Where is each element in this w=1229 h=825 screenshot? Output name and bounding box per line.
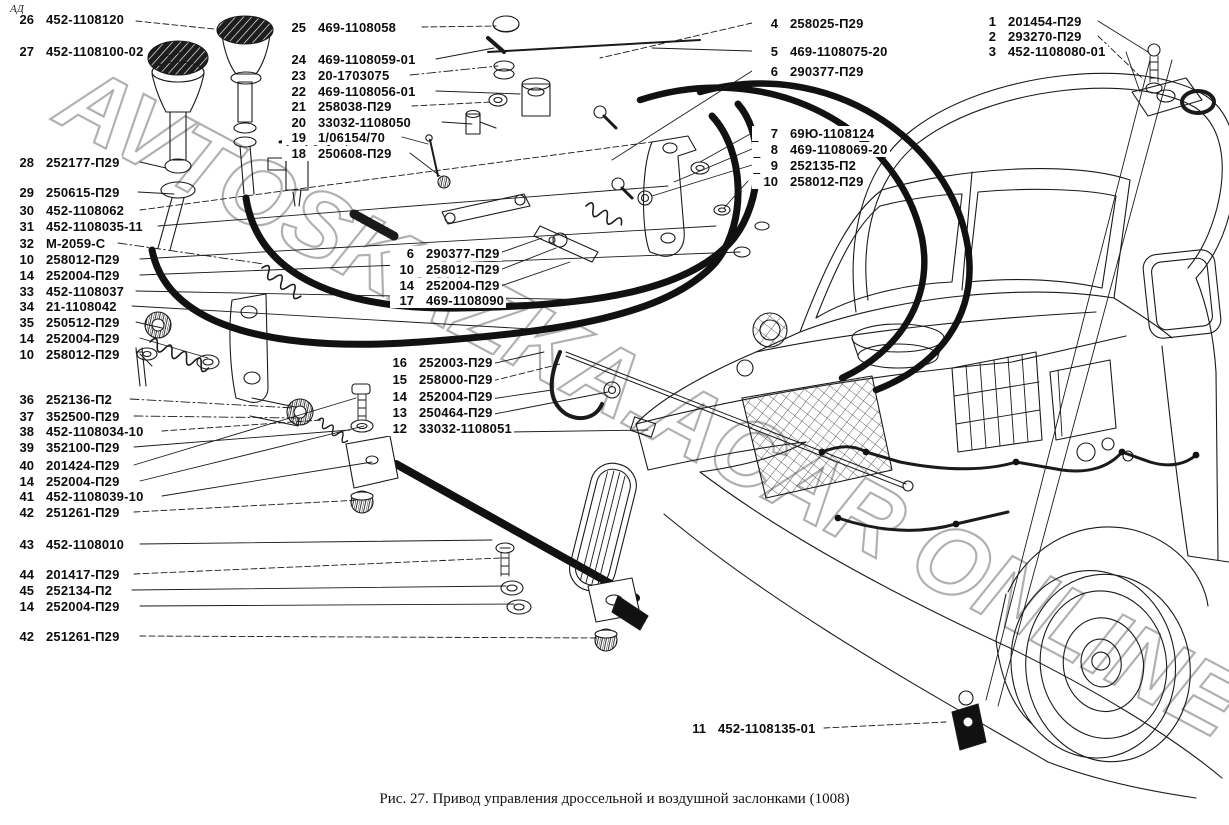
part-ref-number: 4 [754,16,778,31]
part-label-right-column: 6290377-П29 [752,64,866,79]
part-label-right-column: 9252135-П2 [752,158,858,173]
part-code: 258012-П29 [790,174,864,189]
part-code: 252004-П29 [46,268,120,283]
part-ref-number: 37 [10,409,34,424]
part-ref-number: 42 [10,505,34,520]
part-code: 469-1108058 [318,20,396,35]
part-code: 469-1108069-20 [790,142,888,157]
part-ref-number: 36 [10,392,34,407]
part-ref-number: 32 [10,236,34,251]
part-label-left-column: 40201424-П29 [8,458,122,473]
part-ref-number: 45 [10,583,34,598]
part-label-left-column: 14252004-П29 [8,268,122,283]
part-code: 258025-П29 [790,16,864,31]
part-ref-number: 14 [10,474,34,489]
part-code: 452-1108010 [46,537,124,552]
part-label-middle-group-lower: 13250464-П29 [383,405,495,420]
part-ref-number: 6 [392,246,414,261]
part-code: 469-1108059-01 [318,52,416,67]
part-code: 252177-П29 [46,155,120,170]
part-label-right-column: 10258012-П29 [752,174,866,189]
part-code: 258012-П29 [46,347,120,362]
part-code: 20-1703075 [318,68,389,83]
part-label-middle-top-column: 24469-1108059-01 [282,52,418,67]
part-code: М-2059-С [46,236,105,251]
part-label-left-column: 33452-1108037 [8,284,126,299]
part-code: 452-1108034-10 [46,424,144,439]
figure-caption: Рис. 27. Привод управления дроссельной и… [0,791,1229,808]
lower-bracket [952,691,986,750]
part-code: 250512-П29 [46,315,120,330]
part-code: 452-1108037 [46,284,124,299]
part-ref-number: 27 [10,44,34,59]
part-label-middle-top-column: 18250608-П29 [282,146,394,161]
part-ref-number: 1 [980,14,996,29]
part-ref-number: 44 [10,567,34,582]
part-ref-number: 17 [392,293,414,308]
part-ref-number: 6 [754,64,778,79]
part-code: 293270-П29 [1008,29,1082,44]
part-label-far-right-column: 3452-1108080-01 [978,44,1108,59]
part-label-middle-group-lower: 14252004-П29 [383,389,495,404]
part-code: 252004-П29 [46,474,120,489]
part-ref-number: 10 [10,347,34,362]
part-label-middle-group-lower: 1233032-1108051 [383,421,514,436]
part-ref-number: 5 [754,44,778,59]
part-ref-number: 30 [10,203,34,218]
part-code: 452-1108120 [46,12,124,27]
part-label-left-column: 44201417-П29 [8,567,122,582]
part-code: 452-1108135-01 [718,721,816,736]
part-ref-number: 14 [10,599,34,614]
part-code: 258012-П29 [46,252,120,267]
part-code: 258012-П29 [426,262,500,277]
part-label-left-column: 29250615-П29 [8,185,122,200]
watermark-text: AVTOSKAZKA.ACAR ONLINE [40,43,1229,759]
part-ref-number: 8 [754,142,778,157]
part-code: 201417-П29 [46,567,120,582]
part-code: 252136-П2 [46,392,112,407]
part-ref-number: 10 [754,174,778,189]
part-code: 252004-П29 [46,331,120,346]
part-code: 290377-П29 [426,246,500,261]
watermark: AVTOSKAZKA.ACAR ONLINE [40,43,1229,759]
part-code: 1/06154/70 [318,130,385,145]
part-code: 290377-П29 [790,64,864,79]
part-code: 469-1108056-01 [318,84,416,99]
part-ref-number: 2 [980,29,996,44]
part-label-middle-top-column: 2033032-1108050 [282,115,413,130]
part-label-left-column: 35250512-П29 [8,315,122,330]
part-ref-number: 35 [10,315,34,330]
part-label-right-column: 4258025-П29 [752,16,866,31]
part-ref-number: 20 [284,115,306,130]
part-ref-number: 41 [10,489,34,504]
part-ref-number: 39 [10,440,34,455]
part-ref-number: 7 [754,126,778,141]
part-ref-number: 21 [284,99,306,114]
part-code: 452-1108100-02 [46,44,144,59]
part-ref-number: 23 [284,68,306,83]
part-code: 258000-П29 [419,372,493,387]
part-ref-number: 29 [10,185,34,200]
part-ref-number: 40 [10,458,34,473]
part-ref-number: 16 [385,355,407,370]
part-ref-number: 3 [980,44,996,59]
part-label-left-column: 43452-1108010 [8,537,126,552]
part-code: 252004-П29 [46,599,120,614]
part-label-middle-top-column: 191/06154/70 [282,130,387,145]
part-code: 452-1108062 [46,203,124,218]
part-ref-number: 10 [392,262,414,277]
part-code: 33032-1108050 [318,115,411,130]
part-ref-number: 22 [284,84,306,99]
part-ref-number: 43 [10,537,34,552]
part-code: 452-1108080-01 [1008,44,1106,59]
part-label-middle-group-upper: 17469-1108090 [390,293,506,308]
part-ref-number: 31 [10,219,34,234]
part-code: 252134-П2 [46,583,112,598]
part-code: 252004-П29 [419,389,493,404]
part-label-far-right-column: 2293270-П29 [978,29,1084,44]
part-label-left-column: 37352500-П29 [8,409,122,424]
part-label-left-column: 38452-1108034-10 [8,424,146,439]
part-label-left-column: 14252004-П29 [8,474,122,489]
parts-diagram-page: AVTOSKAZKA.ACAR ONLINE [0,0,1229,825]
part-ref-number: 9 [754,158,778,173]
part-label-left-column: 42251261-П29 [8,629,122,644]
part-code: 252003-П29 [419,355,493,370]
part-ref-number: 14 [392,278,414,293]
part-label-middle-group-upper: 6290377-П29 [390,246,502,261]
part-ref-number: 14 [10,268,34,283]
part-label-left-column: 41452-1108039-10 [8,489,146,504]
part-label-left-column: 45252134-П2 [8,583,114,598]
part-label-left-column: 10258012-П29 [8,347,122,362]
part-ref-number: 38 [10,424,34,439]
part-label-bottom-label: 11452-1108135-01 [684,721,818,736]
part-label-left-column: 30452-1108062 [8,203,126,218]
part-code: 252004-П29 [426,278,500,293]
part-ref-number: 24 [284,52,306,67]
part-label-middle-group-upper: 14252004-П29 [390,278,502,293]
part-label-left-column: 28252177-П29 [8,155,122,170]
part-label-left-column: 27452-1108100-02 [8,44,146,59]
part-label-left-column: 36252136-П2 [8,392,114,407]
part-code: 250608-П29 [318,146,392,161]
corner-mark: АД [10,3,24,15]
part-label-middle-group-lower: 16252003-П29 [383,355,495,370]
part-label-left-column: 39352100-П29 [8,440,122,455]
part-code: 250464-П29 [419,405,493,420]
part-code: 250615-П29 [46,185,120,200]
part-ref-number: 13 [385,405,407,420]
part-label-right-column: 8469-1108069-20 [752,142,890,157]
part-label-middle-top-column: 25469-1108058 [282,20,398,35]
part-code: 452-1108039-10 [46,489,144,504]
part-code: 352500-П29 [46,409,120,424]
part-ref-number: 25 [284,20,306,35]
part-code: 469-1108075-20 [790,44,888,59]
exploded-parts-diagram: AVTOSKAZKA.ACAR ONLINE [0,0,1229,825]
part-code: 251261-П29 [46,505,120,520]
part-ref-number: 12 [385,421,407,436]
part-code: 201424-П29 [46,458,120,473]
part-code: 352100-П29 [46,440,120,455]
part-code: 469-1108090 [426,293,504,308]
part-ref-number: 42 [10,629,34,644]
part-label-left-column: 32М-2059-С [8,236,107,251]
part-label-middle-group-lower: 15258000-П29 [383,372,495,387]
part-ref-number: 14 [385,389,407,404]
cable-clamp-bracket [1132,44,1214,116]
part-ref-number: 33 [10,284,34,299]
part-label-left-column: 10258012-П29 [8,252,122,267]
part-label-middle-group-upper: 10258012-П29 [390,262,502,277]
part-ref-number: 14 [10,331,34,346]
part-label-right-column: 769Ю-1108124 [752,126,876,141]
part-code: 33032-1108051 [419,421,512,436]
part-code: 69Ю-1108124 [790,126,874,141]
part-code: 201454-П29 [1008,14,1082,29]
part-label-middle-top-column: 22469-1108056-01 [282,84,418,99]
part-code: 452-1108035-11 [46,219,143,234]
part-code: 21-1108042 [46,299,117,314]
part-ref-number: 34 [10,299,34,314]
part-ref-number: 11 [686,721,706,736]
part-ref-number: 19 [284,130,306,145]
part-ref-number: 10 [10,252,34,267]
part-label-left-column: 3421-1108042 [8,299,119,314]
part-label-left-column: 31452-1108035-11 [8,219,145,234]
part-code: 251261-П29 [46,629,120,644]
part-ref-number: 28 [10,155,34,170]
part-label-left-column: 42251261-П29 [8,505,122,520]
part-label-left-column: 26452-1108120 [8,12,126,27]
part-label-left-column: 14252004-П29 [8,599,122,614]
part-label-left-column: 14252004-П29 [8,331,122,346]
part-ref-number: 15 [385,372,407,387]
part-ref-number: 18 [284,146,306,161]
part-label-far-right-column: 1201454-П29 [978,14,1084,29]
part-label-right-column: 5469-1108075-20 [752,44,890,59]
part-label-middle-top-column: 21258038-П29 [282,99,394,114]
part-code: 258038-П29 [318,99,392,114]
part-code: 252135-П2 [790,158,856,173]
part-label-middle-top-column: 2320-1703075 [282,68,391,83]
